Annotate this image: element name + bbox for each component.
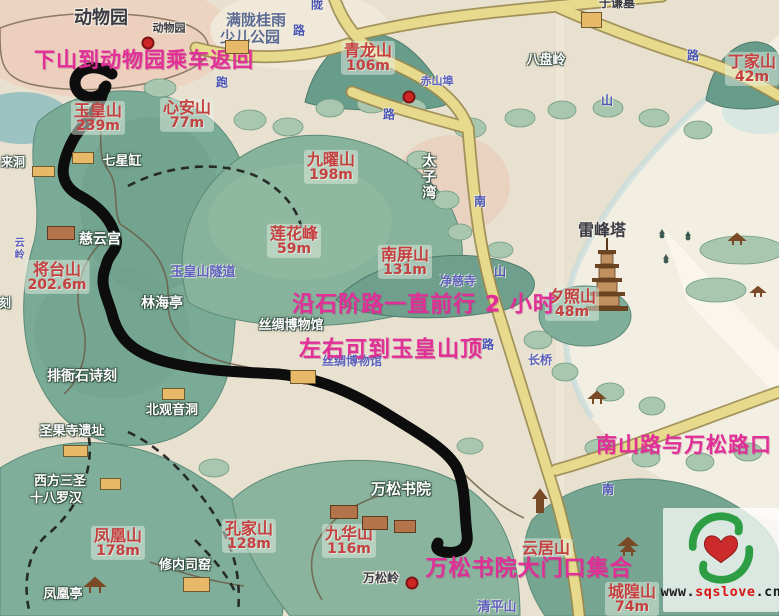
place-label: 满陇桂雨 — [226, 13, 286, 29]
peak-elevation: 106m — [344, 59, 392, 74]
peak-label: 云居山 — [519, 538, 573, 557]
peak-name: 丁家山 — [728, 53, 776, 70]
peak-label: 玉皇山239m — [71, 101, 125, 135]
route-annotation: 下山到动物园乘车返回 — [34, 50, 254, 72]
building-marker — [225, 40, 249, 54]
peak-label: 城隍山74m — [605, 582, 659, 616]
building-marker — [47, 226, 75, 240]
logo-url: www.sqslove.cn — [661, 584, 779, 600]
poi-dot-marker — [406, 577, 419, 590]
peak-label: 凤凰山178m — [91, 526, 145, 560]
peak-name: 心安山 — [163, 99, 211, 116]
peak-elevation: 131m — [381, 263, 429, 278]
place-label: 西方三圣 — [34, 475, 86, 489]
peak-label: 南屏山131m — [378, 245, 432, 279]
heart-in-hands-icon — [680, 512, 762, 584]
place-label: 云岭 — [12, 237, 22, 261]
place-label: 来洞 — [1, 156, 25, 168]
peak-elevation: 59m — [270, 242, 318, 257]
place-label: 万松书院 — [371, 482, 431, 498]
place-label: 长桥 — [528, 354, 552, 366]
building-marker — [330, 505, 358, 519]
building-marker — [183, 577, 210, 592]
building-marker — [394, 520, 416, 533]
route-annotation: 左右可到玉皇山顶 — [299, 340, 483, 363]
place-label: 刻 — [0, 297, 11, 309]
peak-name: 云居山 — [522, 539, 570, 556]
building-marker — [581, 12, 602, 28]
place-label: 雷峰塔 — [578, 223, 626, 240]
logo-url-www: www. — [661, 584, 696, 600]
route-annotation: 万松书院大门口集合 — [425, 559, 632, 582]
place-label: 凤凰亭 — [43, 588, 82, 602]
road-name-char: 陇 — [311, 0, 323, 13]
road-name-char: 路 — [293, 22, 305, 39]
place-label: 十八罗汉 — [30, 492, 82, 506]
road-name-char: 路 — [482, 336, 494, 353]
peak-elevation: 77m — [163, 116, 211, 131]
place-label: 于谦墓 — [599, 0, 635, 9]
route-annotation: 沿石阶路一直前行 2 小时 — [292, 295, 556, 318]
place-label: 太子湾 — [421, 153, 436, 201]
peak-elevation: 128m — [225, 537, 273, 552]
road-name-char: 跑 — [216, 74, 228, 91]
sqslove-logo: www.sqslove.cn — [663, 508, 779, 612]
road-name-char: 南 — [602, 481, 614, 498]
peak-name: 莲花峰 — [270, 225, 318, 242]
peak-name: 城隍山 — [608, 583, 656, 600]
route-annotation: 南山路与万松路口 — [596, 435, 772, 457]
peak-elevation: 116m — [325, 542, 373, 557]
hiking-map: 动物园动物园满陇桂雨少儿公园于谦墓雷峰塔万松岭八盘岭七星缸慈云宫林海亭排衙石诗刻… — [0, 0, 779, 616]
place-label: 万松岭 — [363, 572, 399, 584]
building-marker — [72, 152, 94, 164]
place-label: 玉皇山隧道 — [170, 266, 235, 280]
place-label: 八盘岭 — [526, 54, 565, 68]
place-label: 圣果寺遗址 — [39, 425, 104, 439]
place-label: 慈云宫 — [79, 233, 121, 248]
place-label: 净慈寺 — [440, 275, 476, 287]
peak-elevation: 42m — [728, 70, 776, 85]
poi-dot-marker — [403, 91, 416, 104]
peak-name: 青龙山 — [344, 42, 392, 59]
place-label: 北观音洞 — [146, 404, 198, 418]
building-marker — [290, 370, 316, 384]
peak-label: 九曜山198m — [304, 150, 358, 184]
building-marker — [362, 516, 388, 530]
peak-elevation: 198m — [307, 168, 355, 183]
building-marker — [63, 445, 88, 457]
peak-name: 孔家山 — [225, 520, 273, 537]
peak-label: 将台山202.6m — [25, 260, 90, 294]
place-label: 排衙石诗刻 — [47, 370, 117, 385]
peak-name: 将台山 — [28, 261, 87, 278]
peak-label: 丁家山42m — [725, 52, 779, 86]
peak-elevation: 239m — [74, 119, 122, 134]
peak-name: 南屏山 — [381, 246, 429, 263]
road-name-char: 路 — [687, 47, 699, 64]
road-name-char: 山 — [601, 92, 613, 109]
building-marker — [100, 478, 121, 490]
peak-elevation: 74m — [608, 600, 656, 615]
place-label: 赤山埠 — [421, 75, 454, 86]
building-marker — [162, 388, 185, 400]
peak-label: 心安山77m — [160, 98, 214, 132]
peak-elevation: 178m — [94, 544, 142, 559]
peak-label: 孔家山128m — [222, 519, 276, 553]
place-label: 丝绸博物馆 — [258, 319, 323, 333]
building-marker — [32, 166, 55, 177]
peak-name: 凤凰山 — [94, 527, 142, 544]
place-label: 七星缸 — [102, 155, 141, 169]
place-label: 动物园 — [153, 22, 186, 33]
place-label: 动物园 — [74, 10, 128, 29]
peak-name: 玉皇山 — [74, 102, 122, 119]
road-name-char: 山 — [494, 263, 506, 280]
place-label: 林海亭 — [141, 297, 183, 312]
road-name-char: 路 — [383, 106, 395, 123]
peak-elevation: 202.6m — [28, 278, 87, 293]
road-name-char: 南 — [474, 193, 486, 210]
peak-name: 九曜山 — [307, 151, 355, 168]
logo-url-tld: .cn — [756, 584, 779, 600]
poi-dot-marker — [142, 37, 155, 50]
place-label: 修内司窑 — [159, 559, 211, 573]
peak-label: 莲花峰59m — [267, 224, 321, 258]
peak-label: 青龙山106m — [341, 41, 395, 75]
logo-url-name: sqslove — [695, 584, 755, 600]
place-label: 清平山 — [477, 601, 516, 615]
